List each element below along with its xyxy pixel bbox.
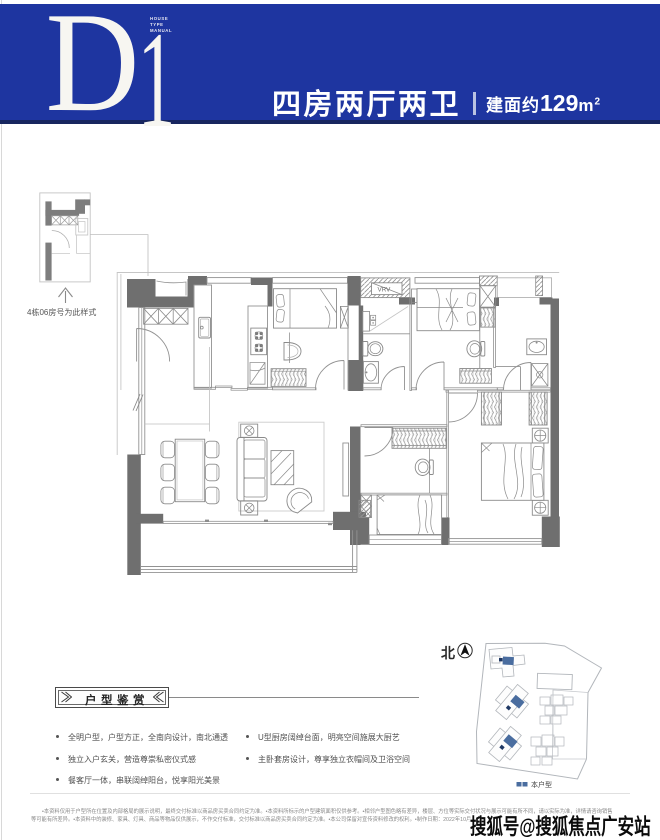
svg-text:北: 北 (441, 645, 455, 661)
svg-text:VRV: VRV (378, 287, 392, 294)
